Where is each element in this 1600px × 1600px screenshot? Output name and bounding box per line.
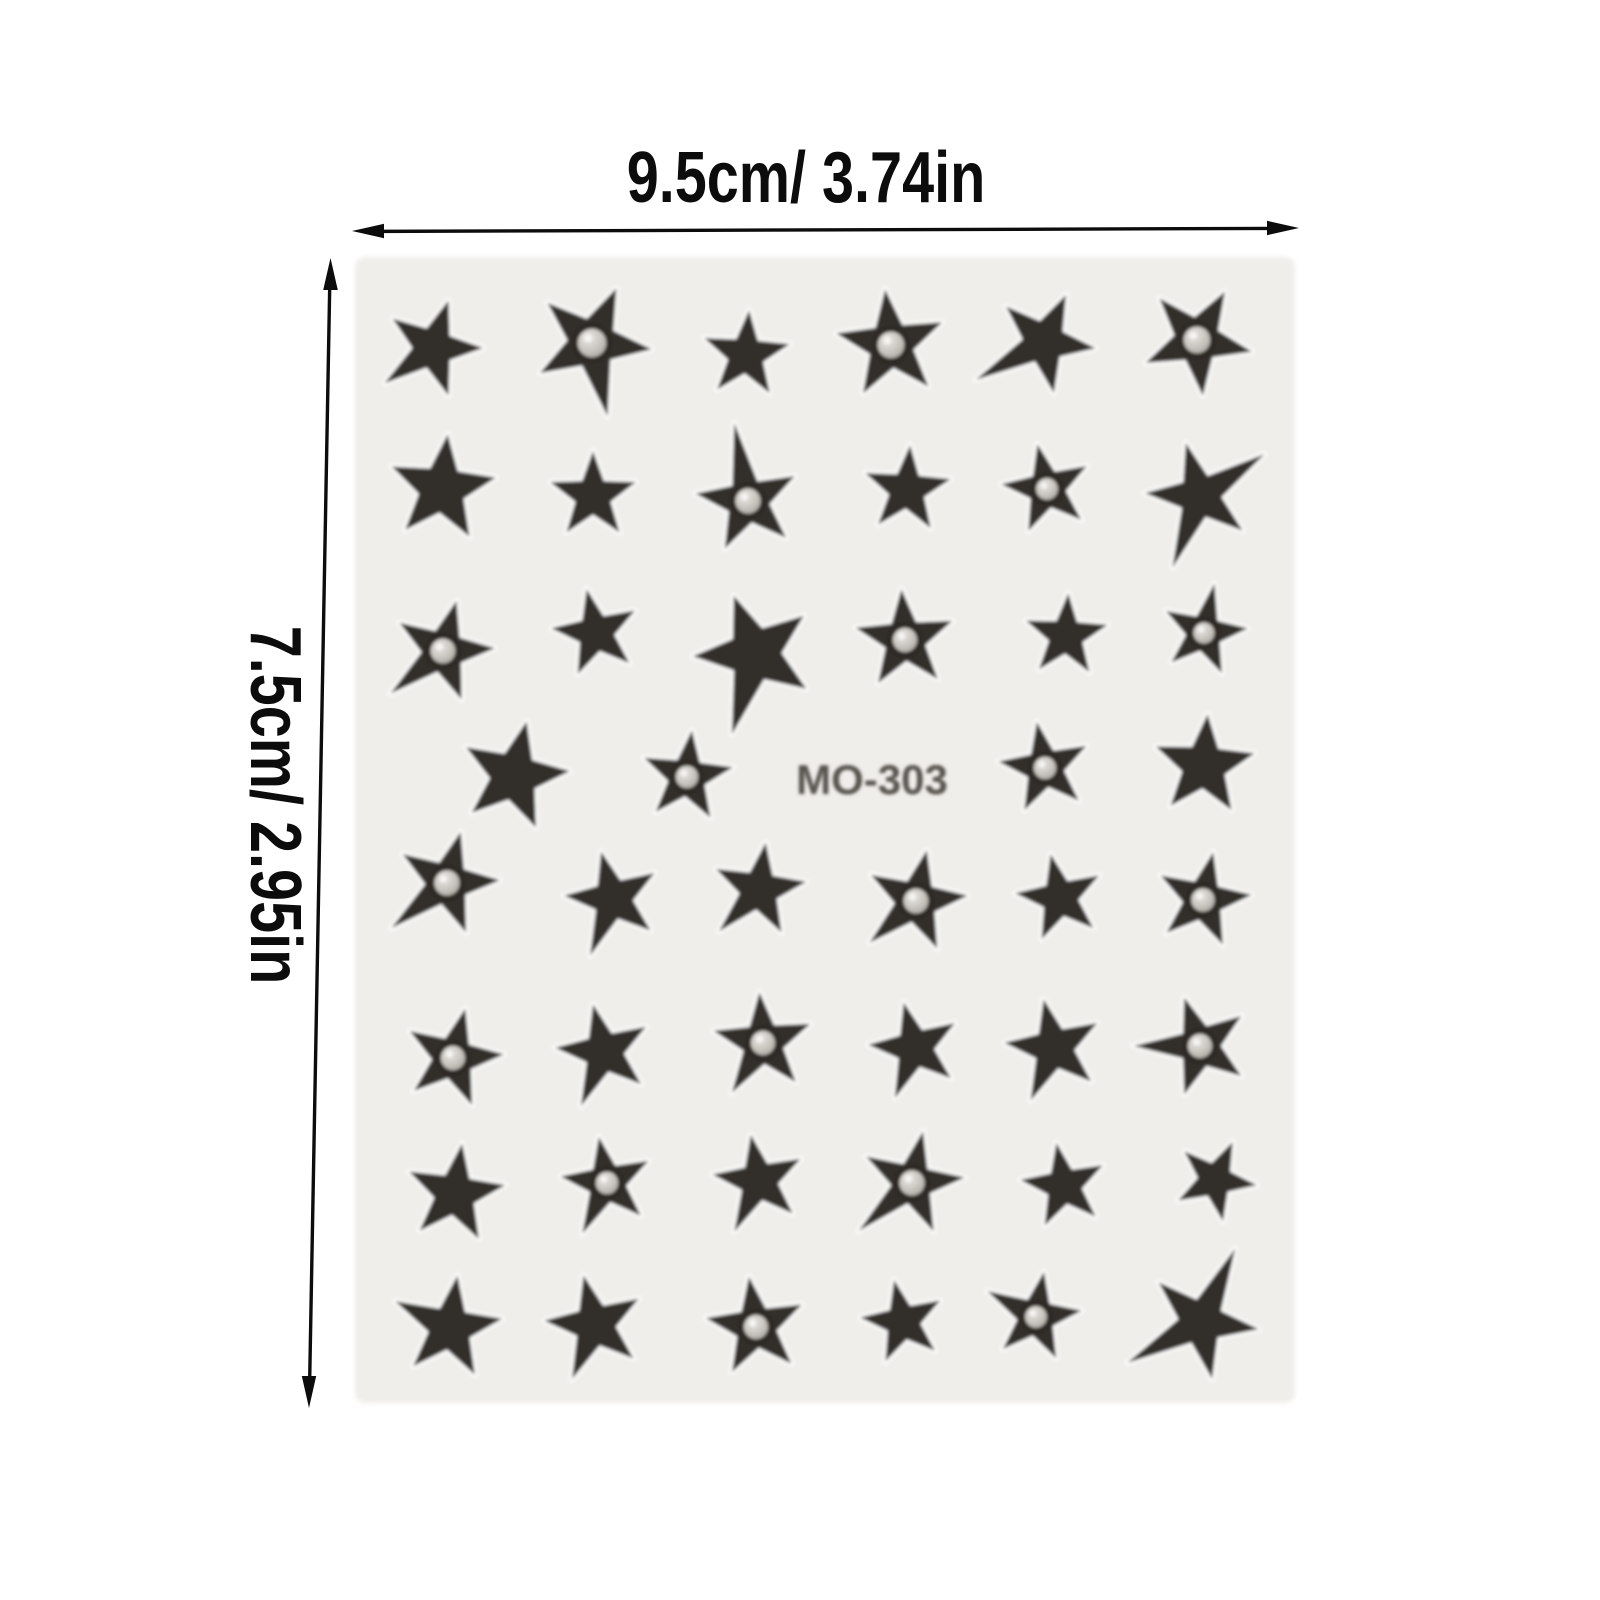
svg-text:MO-303: MO-303 [796, 756, 948, 803]
